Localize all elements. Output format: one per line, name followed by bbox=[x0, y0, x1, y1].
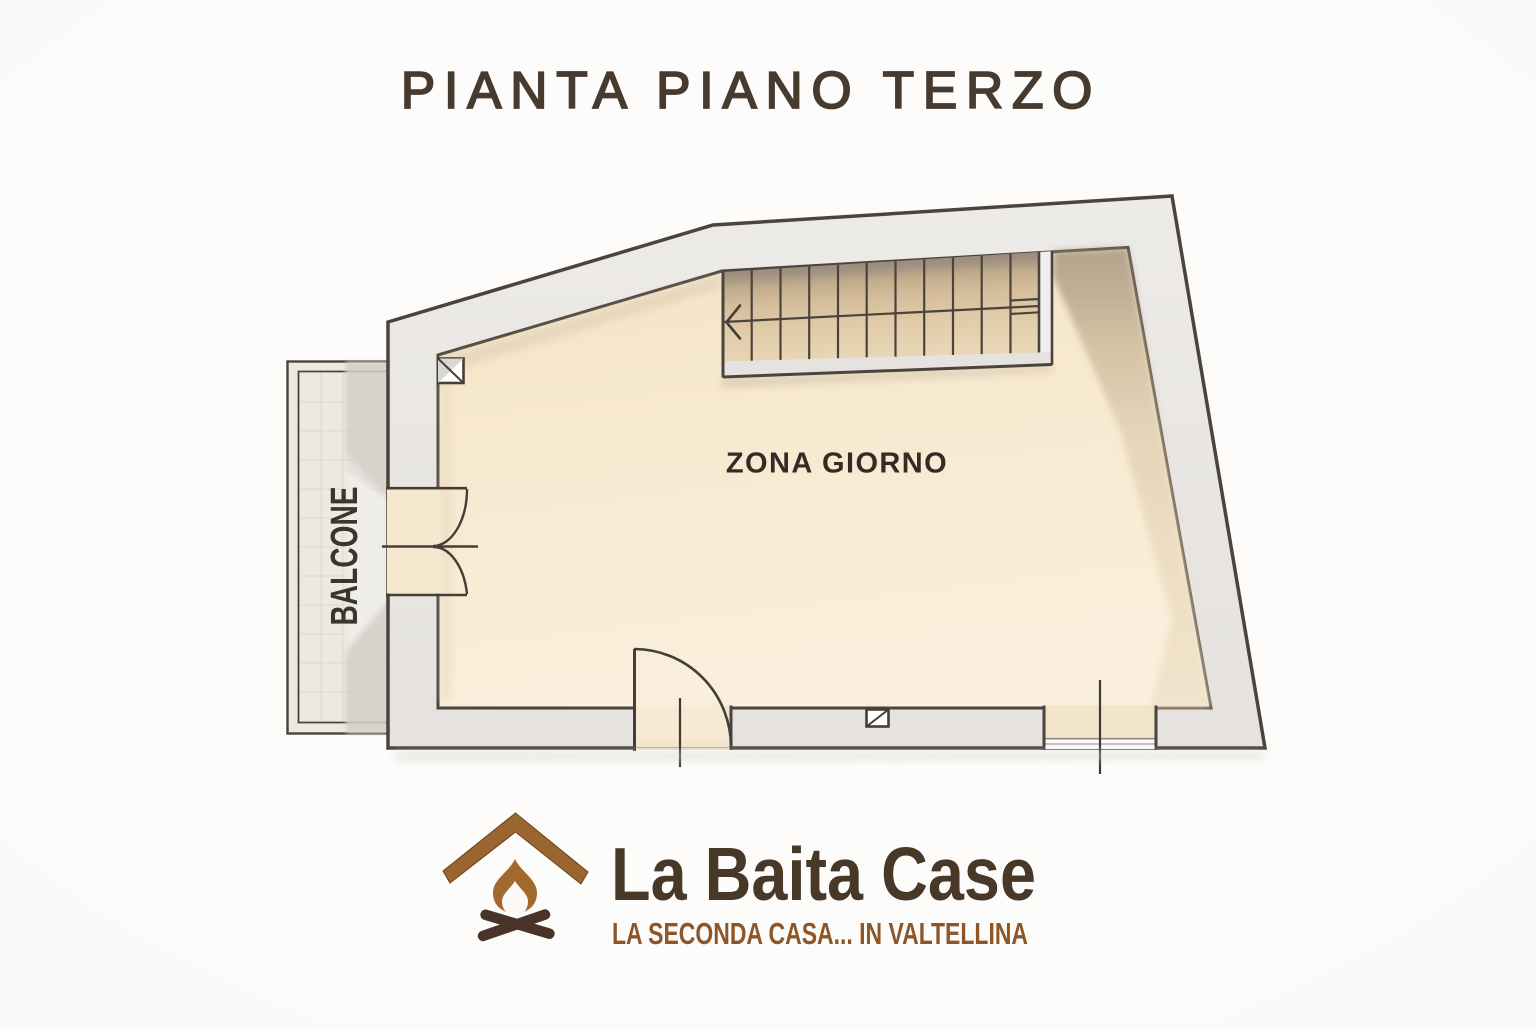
svg-text:LA SECONDA CASA... IN VALTELLI: LA SECONDA CASA... IN VALTELLINA bbox=[612, 916, 1028, 951]
svg-text:PIANTA PIANO TERZO: PIANTA PIANO TERZO bbox=[401, 61, 1101, 119]
svg-text:La Baita Case: La Baita Case bbox=[611, 832, 1036, 916]
svg-text:ZONA GIORNO: ZONA GIORNO bbox=[726, 448, 948, 480]
svg-text:BALCONE: BALCONE bbox=[324, 487, 366, 626]
